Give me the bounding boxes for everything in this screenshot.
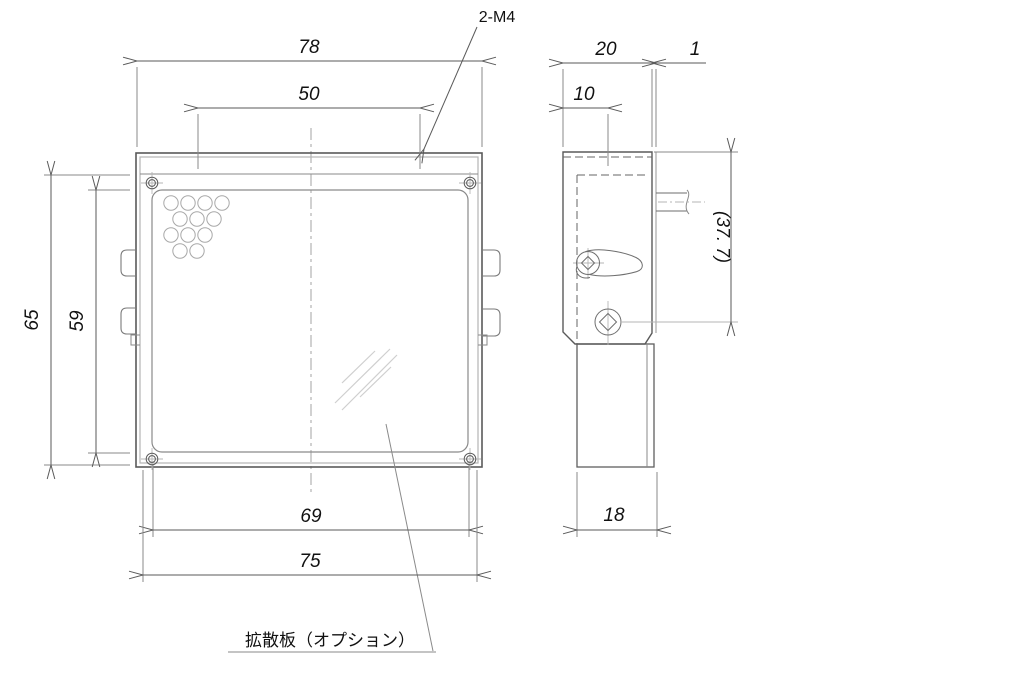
dim-side-body-depth: 18 [603, 505, 625, 526]
technical-drawing: 78 50 65 59 69 75 2-M4 拡散板（オプション） [0, 0, 1024, 683]
dim-side-plate-thickness: 1 [690, 39, 701, 60]
dim-side-overall-depth: 20 [594, 39, 617, 60]
thread-note-label: 2-M4 [479, 9, 516, 26]
thread-note-leader [424, 27, 477, 149]
tab-left-upper [121, 250, 136, 276]
front-view [121, 128, 500, 652]
side-view [563, 152, 705, 467]
diffuser-leader-line [386, 424, 433, 651]
mounting-screw [595, 301, 621, 345]
flange-outline [136, 153, 482, 467]
side-tabs [121, 250, 500, 345]
front-view-dimensions: 78 50 65 59 69 75 2-M4 拡散板（オプション） [22, 9, 515, 650]
tab-right-lower [482, 309, 500, 336]
dim-front-body-width: 75 [299, 551, 321, 572]
glass-reflection-marks [335, 349, 397, 410]
flange-inner-line [140, 157, 478, 463]
cable [656, 190, 705, 214]
dim-front-window-height: 59 [67, 310, 88, 332]
bracket-outline [563, 152, 652, 344]
dim-front-hole-spacing: 50 [298, 84, 320, 105]
body-outline [577, 344, 654, 467]
dim-front-overall-height: 65 [22, 309, 43, 331]
window-frame [152, 190, 468, 452]
dim-side-hole-offset: 10 [573, 84, 595, 105]
dim-front-overall-width: 78 [298, 37, 320, 58]
vent-holes [164, 196, 229, 258]
drawing-canvas: 78 50 65 59 69 75 2-M4 拡散板（オプション） [0, 0, 1024, 683]
diffuser-note-label: 拡散板（オプション） [245, 631, 415, 650]
side-view-dimensions: 20 1 10 18 (37. 7) [563, 39, 738, 537]
clamp-lever [573, 248, 642, 279]
tab-right-upper [482, 250, 500, 276]
dim-side-height-reference: (37. 7) [713, 211, 733, 263]
dim-front-screw-span: 69 [300, 506, 322, 527]
tab-left-lower [121, 308, 136, 334]
